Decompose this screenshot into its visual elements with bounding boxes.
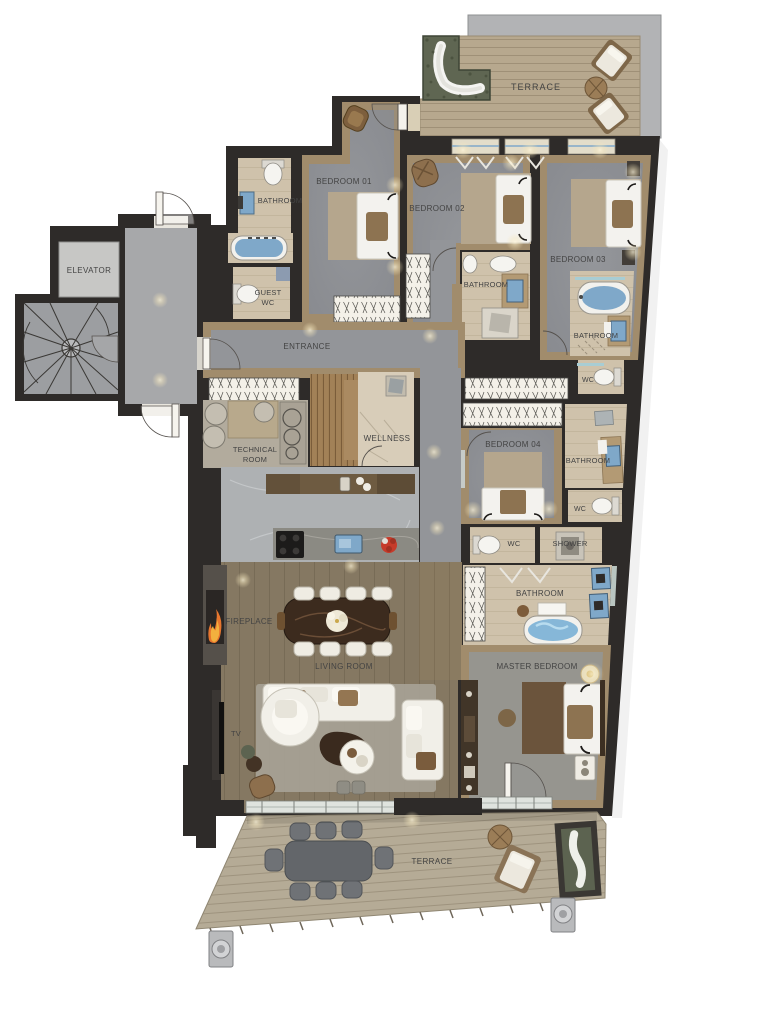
svg-text:ROOM: ROOM [243,455,267,464]
svg-text:TECHNICAL: TECHNICAL [233,445,277,454]
svg-text:BATHROOM: BATHROOM [258,196,302,205]
svg-text:BATHROOM: BATHROOM [566,456,610,465]
svg-text:WC: WC [574,506,586,513]
svg-text:BATHROOM: BATHROOM [574,331,618,340]
svg-text:BEDROOM 04: BEDROOM 04 [485,440,541,449]
svg-text:ENTRANCE: ENTRANCE [283,342,330,351]
svg-text:BATHROOM: BATHROOM [516,589,564,598]
svg-text:TERRACE: TERRACE [411,857,452,866]
svg-text:WC: WC [262,298,275,307]
svg-text:BEDROOM 03: BEDROOM 03 [550,255,606,264]
svg-text:TV: TV [231,729,241,738]
svg-text:WELLNESS: WELLNESS [364,434,411,443]
svg-text:ELEVATOR: ELEVATOR [67,266,112,275]
svg-text:FIREPLACE: FIREPLACE [225,617,272,626]
svg-text:BEDROOM 01: BEDROOM 01 [316,177,372,186]
svg-text:GUEST: GUEST [255,288,282,297]
svg-text:TERRACE: TERRACE [511,82,561,92]
svg-text:WC: WC [508,539,521,548]
svg-text:MASTER BEDROOM: MASTER BEDROOM [496,662,577,671]
svg-text:SHOWER: SHOWER [553,539,588,548]
svg-text:BATHROOM: BATHROOM [464,280,508,289]
svg-text:LIVING ROOM: LIVING ROOM [315,662,373,671]
svg-text:WC: WC [582,377,594,384]
svg-text:BEDROOM 02: BEDROOM 02 [409,204,465,213]
